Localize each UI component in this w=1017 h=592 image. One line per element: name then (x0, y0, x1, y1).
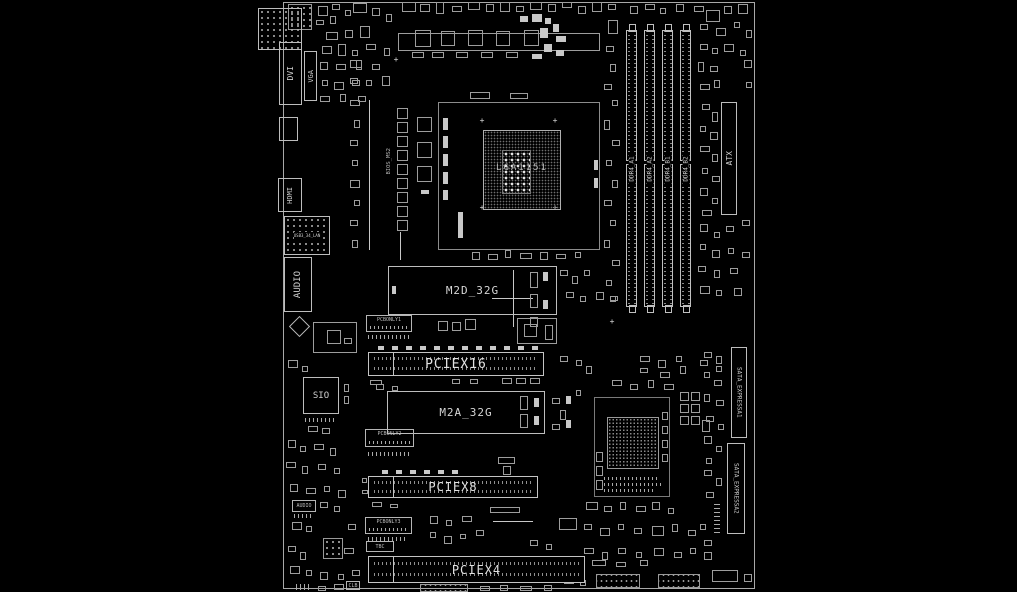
component (344, 338, 352, 344)
component (362, 478, 367, 483)
component (691, 416, 700, 425)
vga-label: VGA (307, 69, 315, 84)
pcbonly3-label: PCBONLY3 (366, 519, 411, 525)
component (392, 346, 398, 350)
component (724, 6, 732, 14)
component (712, 176, 720, 182)
component (640, 560, 648, 566)
component (334, 506, 340, 512)
audio-label: AUDIO (293, 270, 303, 299)
component (490, 507, 520, 513)
component (378, 346, 384, 350)
component (372, 502, 382, 507)
component: + (608, 318, 616, 326)
component (350, 220, 358, 226)
component (332, 4, 340, 10)
component (530, 378, 540, 384)
component (608, 20, 618, 34)
component (452, 6, 462, 12)
component (292, 522, 302, 530)
component (369, 100, 370, 250)
component (350, 140, 358, 146)
tbc-header: TBC (366, 541, 394, 552)
component (300, 552, 306, 560)
header-pins (369, 441, 410, 444)
header-pins (370, 326, 408, 329)
component (545, 18, 551, 24)
component (630, 384, 638, 390)
component (308, 426, 318, 432)
component (556, 254, 566, 259)
audio-connector: AUDIO (284, 257, 312, 312)
sio-chip: SIO (303, 377, 339, 414)
component (712, 154, 718, 162)
sata-express-connector-2: SATA_EXPRESSA2 (727, 443, 745, 534)
component (302, 466, 308, 474)
dvi-label: DVI (286, 65, 295, 81)
component (658, 360, 666, 368)
component (318, 6, 328, 16)
component (368, 452, 410, 456)
component (322, 80, 328, 86)
component (562, 2, 572, 8)
component (397, 178, 408, 189)
component (668, 508, 674, 514)
component (586, 366, 592, 374)
component (712, 250, 720, 258)
component (604, 120, 610, 130)
component (698, 62, 704, 72)
component (746, 82, 752, 88)
component (520, 253, 532, 259)
component (716, 446, 722, 452)
component (606, 160, 612, 166)
component (452, 322, 461, 331)
pcbonly1-header: PCBONLY1 (366, 315, 412, 332)
component (354, 200, 360, 206)
hdmi-connector: HDMI (278, 178, 302, 212)
component (738, 4, 748, 14)
dimm-slot-ddr4-b1: DDR4_B1 (662, 30, 673, 307)
component (417, 117, 432, 132)
component (616, 562, 626, 567)
component (493, 521, 533, 522)
m2-slot-top: M2D_32G (388, 266, 557, 315)
component (470, 379, 478, 384)
component (318, 586, 326, 591)
component (664, 384, 674, 390)
component (556, 36, 566, 42)
component (397, 206, 408, 217)
vga-connector: VGA (304, 51, 317, 101)
component (606, 280, 612, 286)
component (706, 416, 714, 422)
pch-bga-grid (607, 417, 659, 469)
component (504, 346, 510, 350)
component (410, 470, 416, 474)
component (488, 254, 498, 260)
component (553, 24, 559, 32)
component (698, 266, 706, 272)
component (575, 252, 581, 258)
component (456, 52, 468, 58)
component (674, 552, 682, 558)
front-audio-header: AUDIO (292, 500, 316, 512)
component (676, 356, 682, 362)
component (452, 470, 458, 474)
pcie-x4-slot: PCIEX4 (368, 556, 585, 583)
m2-top-label: M2D_32G (446, 284, 499, 297)
component (559, 518, 577, 530)
component (438, 470, 444, 474)
component (714, 232, 720, 238)
component (532, 346, 538, 350)
component (498, 457, 515, 464)
sio-label: SIO (313, 391, 329, 401)
component (584, 270, 590, 276)
component (714, 80, 720, 88)
component (612, 100, 618, 106)
component (397, 108, 408, 119)
dvi-connector: DVI (279, 42, 302, 105)
component (530, 540, 538, 546)
component (320, 62, 328, 70)
component (560, 410, 566, 420)
pcie-x8-slot: PCIEX8 (368, 476, 538, 498)
component (334, 584, 344, 590)
component (572, 276, 578, 284)
component (592, 560, 606, 566)
component (288, 440, 296, 448)
component (486, 4, 494, 12)
component (444, 536, 452, 544)
component (324, 486, 330, 492)
component (430, 516, 438, 524)
component (618, 524, 624, 530)
component (502, 378, 512, 384)
component (728, 248, 734, 254)
component (412, 52, 424, 58)
component (460, 534, 466, 539)
component (690, 548, 696, 554)
component (734, 288, 742, 296)
component (726, 226, 734, 232)
component (660, 372, 670, 378)
component (734, 22, 740, 28)
dimm-label: DDR4_A2 (646, 152, 653, 185)
pcbonly2-header: PCBONLY2 (365, 429, 414, 447)
component (652, 526, 664, 536)
component (344, 384, 349, 392)
component (441, 31, 455, 46)
component (372, 8, 380, 16)
component (468, 30, 483, 46)
usb-port-connector (279, 117, 298, 141)
component (490, 346, 496, 350)
component (744, 574, 752, 582)
component (462, 346, 468, 350)
cpu-socket-label: LGA1151 (483, 163, 561, 173)
component (320, 572, 328, 580)
component (691, 404, 700, 413)
component (372, 64, 380, 70)
component (496, 31, 510, 46)
component (366, 44, 376, 50)
component (352, 160, 358, 166)
sata-express-connector-1: SATA_EXPRESSA1 (731, 347, 747, 438)
component (448, 346, 454, 350)
component (397, 192, 408, 203)
component (700, 146, 710, 152)
component (326, 32, 338, 40)
component (520, 16, 528, 22)
component (702, 168, 708, 174)
component (438, 321, 448, 331)
component (368, 335, 410, 339)
clb-jumper: CLB (346, 581, 360, 590)
component (421, 190, 429, 194)
component (710, 66, 718, 72)
component (544, 585, 552, 591)
component (532, 14, 542, 22)
component (746, 30, 752, 38)
component (704, 470, 712, 476)
component (436, 2, 444, 14)
component (680, 392, 689, 401)
component (700, 286, 710, 294)
component (700, 524, 706, 530)
component (306, 526, 312, 532)
component (608, 4, 616, 10)
component (505, 250, 511, 258)
component (338, 574, 344, 580)
component (560, 270, 568, 276)
pcbonly2-label: PCBONLY2 (366, 431, 413, 437)
component (730, 268, 738, 274)
component (290, 484, 298, 492)
component (716, 356, 722, 364)
component (305, 418, 335, 422)
component (704, 352, 712, 358)
sata-express-1-label: SATA_EXPRESSA1 (736, 366, 743, 419)
component (576, 390, 581, 396)
component (417, 142, 432, 158)
component (323, 538, 343, 559)
component (382, 470, 388, 474)
component (476, 530, 484, 536)
component (604, 200, 612, 206)
component (470, 92, 490, 99)
component (612, 140, 620, 146)
component (500, 2, 510, 12)
component (503, 466, 511, 475)
component (376, 384, 384, 390)
component (397, 122, 408, 133)
component (576, 360, 582, 366)
dimm-label: DDR4_B2 (682, 152, 689, 185)
component (566, 292, 574, 298)
clb-label: CLB (348, 583, 357, 589)
component (352, 80, 360, 86)
component (338, 44, 346, 56)
component (318, 464, 326, 470)
component (716, 290, 722, 296)
component (430, 532, 436, 538)
component (330, 16, 336, 24)
component (520, 586, 532, 591)
component (676, 4, 684, 12)
component (481, 52, 493, 58)
component (612, 380, 622, 386)
bios-label-text: BIOS_MS2 (386, 148, 392, 175)
component (680, 404, 689, 413)
sata-express-2-label: SATA_EXPRESSA2 (733, 462, 740, 515)
component (710, 132, 718, 140)
component (345, 30, 353, 38)
tbc-label: TBC (375, 544, 384, 550)
component (620, 502, 626, 510)
component (480, 586, 490, 591)
component (452, 379, 460, 384)
component (714, 504, 720, 534)
pcbonly3-header: PCBONLY3 (365, 517, 412, 534)
component (556, 50, 564, 56)
component (334, 468, 340, 474)
component (345, 10, 351, 16)
component (652, 502, 660, 510)
component (340, 94, 346, 102)
dimm-label: DDR4_B1 (664, 152, 671, 185)
component (530, 2, 542, 10)
component (465, 319, 476, 330)
component (397, 150, 408, 161)
component (322, 428, 330, 434)
component (716, 478, 722, 486)
component (716, 366, 722, 372)
component (702, 210, 712, 216)
component (402, 2, 416, 12)
component (468, 2, 480, 10)
component (384, 48, 390, 56)
component (420, 4, 430, 12)
component (706, 458, 712, 464)
component (742, 252, 750, 258)
component (472, 252, 480, 260)
component (704, 436, 712, 444)
component (532, 54, 542, 59)
component (596, 574, 640, 588)
component (353, 3, 367, 13)
lan-chip-label: USB3_34_LAN (294, 232, 321, 239)
component (680, 416, 689, 425)
component (610, 296, 616, 302)
component (545, 325, 553, 340)
component (636, 552, 642, 558)
dimm-label: DDR4_A1 (628, 152, 635, 185)
pcie-x16-label: PCIEX16 (369, 353, 543, 375)
component (636, 506, 646, 512)
component (586, 502, 598, 510)
component (350, 60, 362, 68)
component (704, 394, 710, 402)
component (580, 296, 586, 302)
component (327, 330, 341, 344)
component (718, 424, 724, 430)
component (540, 252, 548, 260)
component (350, 180, 360, 188)
component (506, 52, 518, 58)
component (396, 470, 402, 474)
component (712, 48, 718, 54)
component (600, 528, 610, 536)
component (714, 380, 722, 386)
component (524, 30, 539, 46)
pcie-x8-label: PCIEX8 (369, 477, 537, 497)
component (462, 516, 472, 522)
component (306, 570, 312, 576)
component (300, 446, 306, 452)
component (578, 6, 586, 14)
component (654, 548, 664, 556)
component (322, 46, 332, 54)
component (540, 28, 548, 38)
component (706, 10, 720, 22)
component (724, 44, 734, 52)
component (640, 368, 648, 373)
front-audio-label: AUDIO (296, 503, 311, 509)
component (417, 166, 432, 182)
component (516, 6, 524, 12)
component (584, 548, 594, 554)
component (640, 356, 650, 362)
component (740, 50, 746, 56)
m2-slot-bottom: M2A_32G (387, 391, 545, 434)
component (400, 232, 401, 260)
component (612, 180, 618, 188)
component (700, 84, 710, 90)
component (334, 82, 344, 90)
component (546, 544, 552, 550)
component (320, 502, 328, 508)
component (406, 346, 412, 350)
component (476, 346, 482, 350)
component (336, 64, 346, 70)
atx-label: ATX (725, 150, 734, 166)
component (694, 6, 704, 12)
component (604, 506, 612, 512)
component (314, 444, 324, 450)
pcie-x4-label: PCIEX4 (369, 557, 584, 582)
component (286, 462, 296, 468)
component (302, 366, 308, 372)
component (350, 100, 360, 106)
component (352, 570, 360, 576)
component (446, 520, 452, 526)
component (712, 112, 718, 122)
component (390, 504, 398, 508)
atx-power-connector: ATX (721, 102, 737, 215)
component (592, 2, 602, 12)
component (704, 372, 710, 378)
component (700, 188, 708, 196)
component (700, 24, 708, 30)
component (344, 396, 349, 404)
dimm-slot-ddr4-a2: DDR4_A2 (644, 30, 655, 307)
boardview-canvas: ++++++ DVI VGA HDMI USB3_34_LAN AUDIO BI… (0, 0, 1017, 592)
component (524, 324, 537, 337)
lan-usb3-controller-chip: USB3_34_LAN (284, 216, 330, 255)
component (344, 548, 354, 554)
